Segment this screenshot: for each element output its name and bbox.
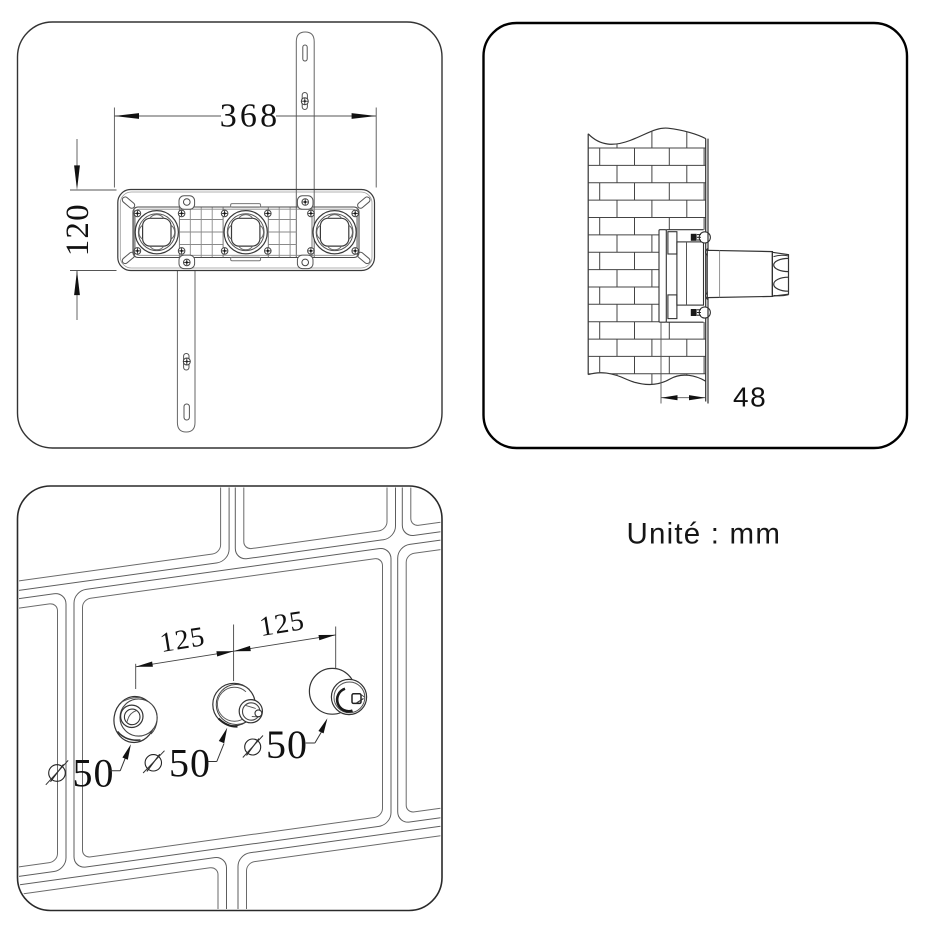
svg-text:48: 48	[733, 382, 767, 413]
svg-text:50: 50	[73, 751, 115, 796]
svg-text:120: 120	[60, 203, 96, 256]
svg-text:Unité : mm: Unité : mm	[627, 518, 782, 551]
svg-text:50: 50	[169, 741, 211, 786]
svg-text:368: 368	[220, 98, 281, 135]
svg-text:50: 50	[266, 722, 308, 767]
